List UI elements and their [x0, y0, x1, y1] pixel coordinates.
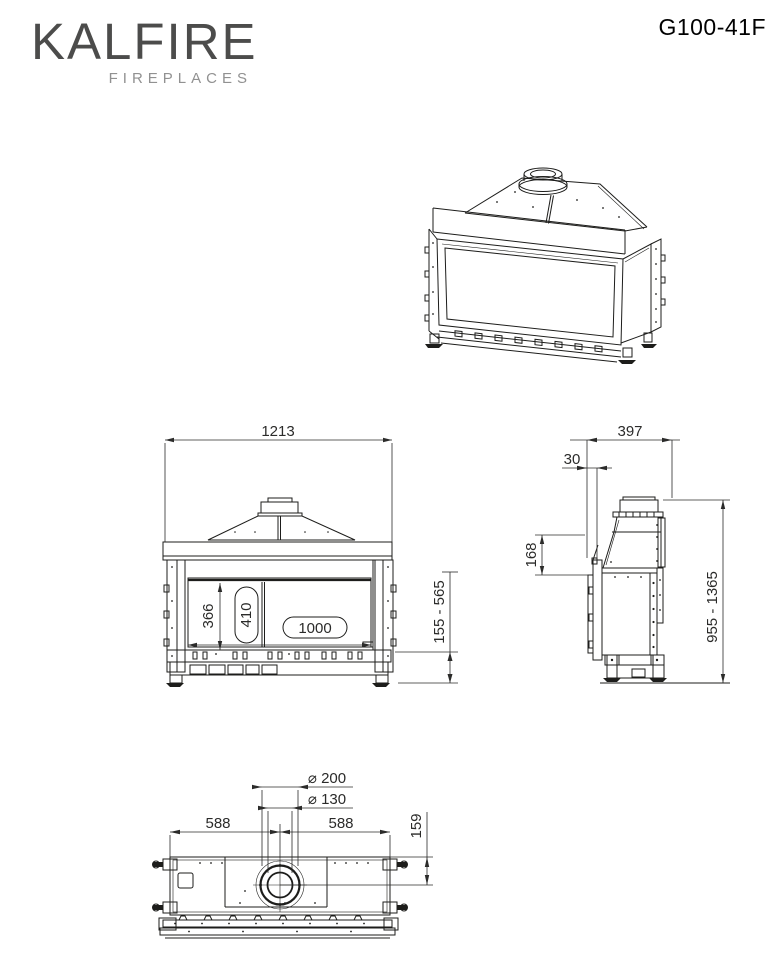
side-flue-collar — [613, 497, 663, 517]
brand-name: KALFIRE — [31, 16, 253, 67]
dim-depth: 397 — [617, 425, 642, 440]
dim-flue-inner-diameter: ⌀ 130 — [308, 791, 346, 808]
dim-base-height-range: 155 - 565 — [431, 580, 448, 643]
front-feet — [166, 675, 390, 687]
model-number: G100-41F — [658, 14, 766, 41]
dim-flue-center-to-back: 159 — [408, 813, 425, 838]
dim-center-to-left: 588 — [205, 815, 230, 832]
iso-hood — [465, 178, 647, 231]
dim-overall-width: 1213 — [261, 425, 294, 440]
side-view-drawing: 397 30 168 955 - 1365 — [520, 425, 784, 712]
top-dimensions: ⌀ 200 ⌀ 130 588 588 159 — [170, 770, 433, 885]
front-hearth-strip — [167, 650, 391, 662]
side-front-frame — [588, 560, 602, 660]
side-dimensions: 397 30 168 955 - 1365 — [523, 425, 730, 683]
front-hood — [208, 516, 355, 540]
top-front-strip — [159, 916, 398, 938]
front-body: 410 1000 — [163, 498, 396, 687]
dim-overall-height-range: 955 - 1365 — [704, 571, 721, 643]
iso-glass-panel — [437, 239, 623, 345]
dim-glass-height: 366 — [200, 603, 217, 628]
side-hood — [603, 517, 661, 568]
side-legs — [600, 655, 730, 683]
brand-subtitle: FIREPLACES — [31, 70, 253, 87]
front-top-band — [163, 542, 392, 560]
iso-right-side — [621, 239, 665, 348]
window-height-badge: 410 — [238, 602, 255, 627]
dim-frame-offset: 30 — [564, 451, 581, 468]
brand-logo: KALFIRE FIREPLACES — [31, 16, 253, 87]
front-side-frames — [164, 560, 396, 672]
spec-sheet-page: KALFIRE FIREPLACES G100-41F — [0, 0, 784, 962]
dim-front-top-section: 168 — [523, 542, 540, 567]
front-flue-collar — [258, 498, 302, 516]
dim-flue-outer-diameter: ⌀ 200 — [308, 770, 346, 787]
front-dimensions: 1213 366 155 - 565 — [165, 425, 458, 683]
front-view-drawing: 410 1000 — [150, 425, 470, 712]
top-body — [153, 857, 408, 938]
window-width-badge: 1000 — [298, 620, 331, 637]
front-plinth — [170, 662, 388, 675]
isometric-view-drawing — [415, 145, 680, 385]
dim-center-to-right: 588 — [328, 815, 353, 832]
iso-top-band — [433, 208, 625, 254]
front-window-badges: 410 1000 — [235, 587, 347, 643]
top-view-drawing: ⌀ 200 ⌀ 130 588 588 159 — [145, 760, 475, 960]
